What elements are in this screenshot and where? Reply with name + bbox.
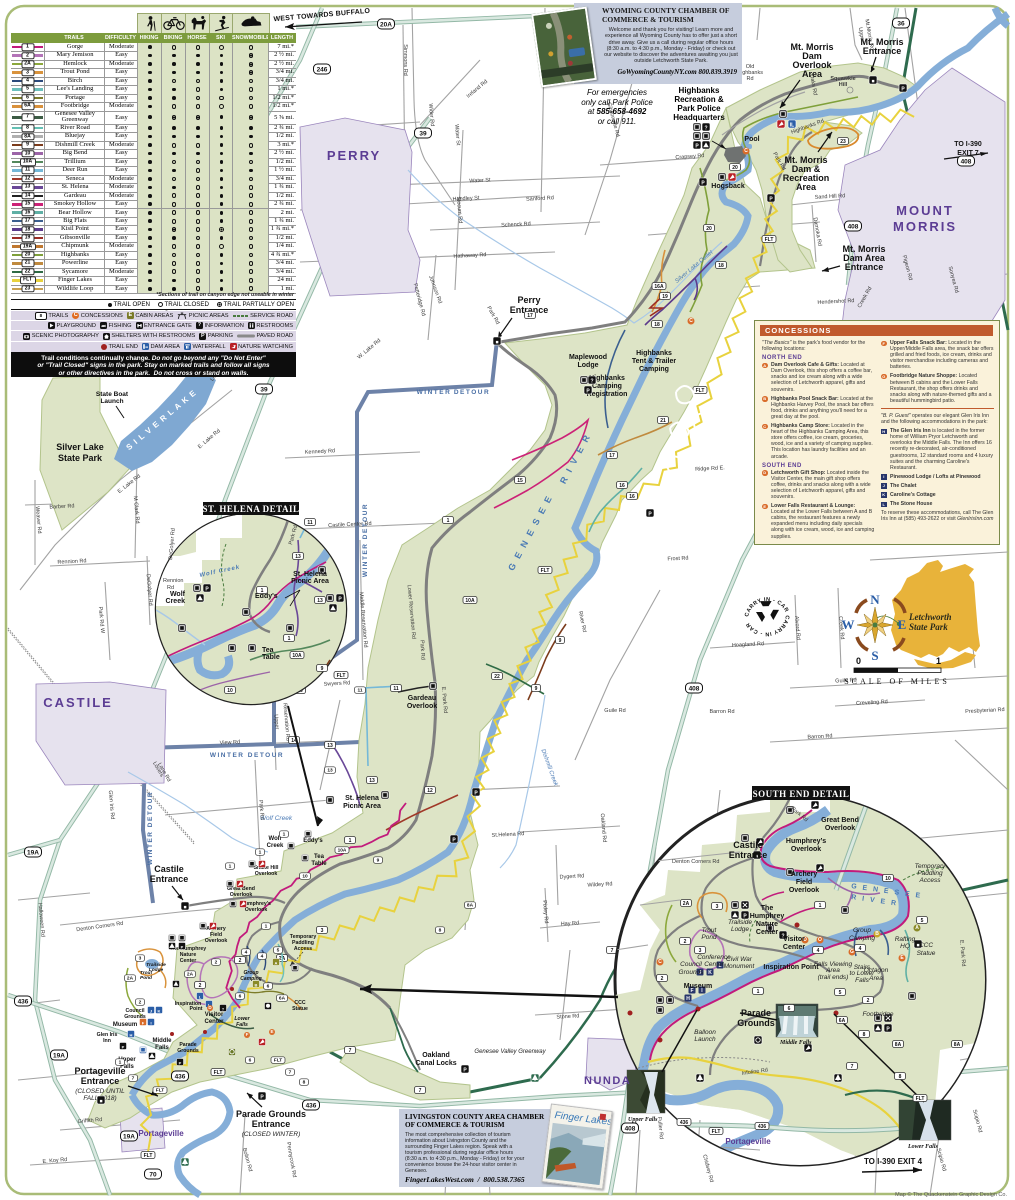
- svg-text:■: ■: [495, 340, 498, 346]
- svg-text:6: 6: [788, 1006, 791, 1012]
- svg-text:13: 13: [295, 554, 301, 560]
- svg-text:■: ■: [871, 79, 874, 85]
- svg-text:Rennion: Rennion: [163, 578, 184, 584]
- svg-text:Castile: Castile: [154, 864, 184, 874]
- svg-text:Grounds: Grounds: [679, 969, 705, 976]
- svg-text:5: 5: [921, 918, 924, 924]
- svg-text:Creek: Creek: [267, 843, 284, 849]
- svg-text:Point: Point: [190, 1006, 203, 1012]
- svg-text:St. Helena: St. Helena: [345, 795, 379, 802]
- svg-text:FLT: FLT: [274, 1058, 283, 1064]
- svg-text:Simmons Rd: Simmons Rd: [402, 44, 408, 75]
- svg-text:Water St: Water St: [469, 177, 491, 184]
- svg-text:to Lower: to Lower: [850, 970, 876, 977]
- svg-text:16A: 16A: [654, 284, 664, 290]
- svg-text:10: 10: [885, 876, 891, 882]
- svg-text:Council: Council: [680, 961, 702, 968]
- svg-text:0: 0: [856, 656, 861, 666]
- svg-text:1: 1: [288, 636, 291, 642]
- svg-text:Silver Lake: Silver Lake: [56, 442, 104, 452]
- svg-text:Nature: Nature: [756, 921, 778, 928]
- svg-text:Tent & Trailer: Tent & Trailer: [632, 358, 676, 365]
- svg-text:39: 39: [419, 130, 427, 137]
- svg-text:9: 9: [377, 858, 380, 864]
- svg-text:C: C: [658, 959, 662, 965]
- svg-text:State Boat: State Boat: [96, 391, 129, 398]
- svg-text:408: 408: [625, 1125, 636, 1132]
- svg-text:E: E: [898, 617, 907, 632]
- svg-text:?: ?: [704, 126, 707, 132]
- svg-text:7: 7: [289, 1070, 292, 1076]
- svg-text:7: 7: [132, 1076, 135, 1082]
- svg-text:IL: IL: [790, 123, 794, 129]
- svg-text:Overlook: Overlook: [230, 892, 253, 898]
- svg-text:13: 13: [327, 768, 333, 774]
- svg-text:Map © The Quackenstein Graphic: Map © The Quackenstein Graphic Design Co…: [895, 1191, 1007, 1198]
- svg-text:11: 11: [357, 688, 362, 694]
- svg-text:13: 13: [369, 778, 375, 784]
- svg-text:SOUTH END DETAIL: SOUTH END DETAIL: [753, 789, 850, 799]
- svg-text:Area: Area: [796, 182, 817, 192]
- svg-text:9: 9: [559, 638, 562, 644]
- svg-text:2A: 2A: [127, 976, 134, 982]
- svg-text:18: 18: [654, 322, 660, 328]
- svg-text:16: 16: [629, 494, 635, 500]
- svg-text:Entrance: Entrance: [150, 874, 189, 884]
- svg-text:7: 7: [611, 948, 614, 954]
- svg-text:1: 1: [447, 518, 450, 524]
- svg-text:Trailside: Trailside: [728, 919, 752, 926]
- svg-text:Launch: Launch: [694, 1036, 716, 1043]
- svg-text:6: 6: [239, 994, 242, 1000]
- svg-text:4: 4: [245, 950, 248, 956]
- svg-text:4: 4: [261, 954, 264, 960]
- svg-text:E: E: [270, 1029, 273, 1034]
- svg-text:39: 39: [260, 386, 268, 393]
- svg-text:Rd: Rd: [167, 585, 174, 591]
- svg-text:10: 10: [227, 688, 233, 694]
- svg-text:10: 10: [302, 874, 308, 880]
- svg-text:FLT: FLT: [765, 237, 774, 243]
- svg-text:Hay Rd: Hay Rd: [561, 921, 580, 928]
- svg-text:11: 11: [393, 686, 399, 692]
- svg-text:Highbanks: Highbanks: [636, 350, 672, 357]
- svg-text:5: 5: [277, 948, 280, 954]
- svg-text:MOUNT: MOUNT: [896, 203, 954, 218]
- svg-text:A: A: [915, 925, 919, 931]
- svg-text:Parade Grounds: Parade Grounds: [236, 1109, 306, 1119]
- svg-text:3: 3: [699, 948, 702, 954]
- svg-text:6: 6: [267, 984, 270, 990]
- svg-text:20: 20: [706, 226, 712, 232]
- svg-text:C: C: [689, 318, 693, 324]
- svg-text:Table: Table: [311, 861, 327, 867]
- svg-text:436: 436: [680, 1120, 689, 1126]
- svg-text:Denton Corners Rd: Denton Corners Rd: [672, 859, 719, 865]
- svg-text:5: 5: [839, 990, 842, 996]
- svg-text:(trail ends): (trail ends): [818, 974, 849, 981]
- svg-text:H: H: [686, 996, 690, 1002]
- svg-text:St. Helena: St. Helena: [293, 571, 327, 578]
- svg-text:Pool: Pool: [744, 136, 759, 143]
- svg-text:17: 17: [609, 453, 615, 459]
- svg-text:Falls: Falls: [855, 977, 869, 984]
- svg-text:H: H: [130, 1032, 133, 1037]
- svg-text:NUNDA: NUNDA: [584, 1075, 631, 1087]
- svg-text:246: 246: [317, 66, 328, 73]
- svg-text:K: K: [708, 970, 712, 976]
- svg-text:Inn: Inn: [103, 1038, 111, 1044]
- svg-text:Center: Center: [704, 961, 724, 968]
- svg-text:1: 1: [349, 838, 352, 844]
- svg-text:FLT: FLT: [916, 1096, 925, 1102]
- svg-text:Humphrey: Humphrey: [750, 913, 785, 920]
- svg-text:Footbridge: Footbridge: [862, 1011, 893, 1018]
- svg-text:7: 7: [851, 1064, 854, 1070]
- svg-text:13: 13: [327, 743, 333, 749]
- svg-text:1: 1: [261, 588, 264, 594]
- svg-text:408: 408: [848, 223, 859, 230]
- svg-text:Balloon: Balloon: [694, 1029, 716, 1036]
- svg-text:Access: Access: [919, 877, 942, 884]
- svg-text:WINTER DETOUR: WINTER DETOUR: [147, 791, 154, 865]
- svg-text:Pond: Pond: [140, 975, 153, 981]
- svg-text:The: The: [761, 905, 774, 912]
- svg-text:Archery: Archery: [791, 871, 818, 878]
- svg-text:23: 23: [840, 139, 846, 145]
- svg-text:436: 436: [306, 1102, 317, 1109]
- svg-text:FLT: FLT: [156, 1088, 165, 1094]
- svg-text:Great Bend: Great Bend: [821, 817, 859, 824]
- svg-text:Launch: Launch: [100, 398, 123, 405]
- svg-text:Overlook: Overlook: [789, 887, 819, 894]
- svg-text:P: P: [181, 944, 184, 949]
- svg-text:19A: 19A: [123, 1133, 135, 1140]
- svg-text:19A: 19A: [27, 849, 39, 856]
- svg-text:WINTER DETOUR: WINTER DETOUR: [210, 752, 284, 759]
- svg-text:PERRY: PERRY: [327, 148, 381, 163]
- svg-text:Center: Center: [756, 929, 778, 936]
- svg-text:Entrance: Entrance: [845, 262, 884, 272]
- svg-text:Museum: Museum: [113, 1022, 137, 1028]
- svg-text:8A: 8A: [467, 903, 474, 909]
- svg-text:P: P: [179, 1060, 182, 1065]
- svg-text:2: 2: [867, 998, 870, 1004]
- svg-text:6: 6: [249, 1058, 252, 1064]
- svg-text:MORRIS: MORRIS: [893, 219, 957, 234]
- svg-text:Inspiration Point: Inspiration Point: [763, 964, 819, 971]
- svg-text:Middle Falls: Middle Falls: [779, 1040, 812, 1046]
- svg-text:Oakland: Oakland: [422, 1052, 450, 1059]
- svg-text:Eddy’s: Eddy’s: [303, 838, 323, 844]
- svg-text:22: 22: [494, 674, 500, 680]
- svg-text:Entrance: Entrance: [729, 850, 768, 860]
- svg-text:Rafting: Rafting: [895, 936, 916, 943]
- svg-text:Upper Falls: Upper Falls: [628, 1117, 658, 1123]
- svg-text:4: 4: [817, 948, 820, 954]
- svg-text:DETOUR: DETOUR: [454, 389, 490, 396]
- svg-text:10A: 10A: [465, 598, 475, 604]
- svg-text:Overlook: Overlook: [255, 871, 278, 877]
- svg-text:Barron Rd: Barron Rd: [709, 709, 734, 715]
- svg-text:8A: 8A: [954, 1042, 961, 1048]
- svg-text:436: 436: [18, 998, 29, 1005]
- svg-text:Civil War: Civil War: [726, 956, 753, 963]
- svg-text:Perry: Perry: [517, 295, 540, 305]
- svg-text:G: G: [850, 949, 854, 955]
- svg-text:Canal Locks: Canal Locks: [415, 1060, 456, 1067]
- svg-text:1: 1: [936, 656, 941, 666]
- svg-text:FLT: FLT: [214, 1070, 223, 1076]
- svg-text:■: ■: [99, 1099, 102, 1105]
- svg-text:Camping: Camping: [592, 383, 622, 390]
- svg-text:HQ: HQ: [900, 943, 910, 950]
- svg-text:Paddling: Paddling: [917, 870, 943, 877]
- svg-text:3: 3: [321, 928, 324, 934]
- svg-text:Group: Group: [853, 927, 871, 934]
- svg-text:Table: Table: [262, 654, 280, 661]
- svg-text:FLT: FLT: [144, 1153, 153, 1159]
- svg-text:P: P: [122, 1044, 125, 1049]
- svg-text:4: 4: [859, 946, 862, 952]
- svg-text:Grounds: Grounds: [737, 1018, 775, 1028]
- svg-text:Tea: Tea: [262, 647, 274, 654]
- svg-text:2A: 2A: [683, 901, 690, 907]
- svg-text:Center: Center: [783, 944, 805, 951]
- svg-text:17: 17: [527, 313, 533, 319]
- svg-text:3: 3: [139, 956, 142, 962]
- svg-text:Museum: Museum: [684, 983, 712, 990]
- svg-text:W: W: [842, 617, 855, 632]
- svg-text:Overlook: Overlook: [205, 938, 228, 944]
- svg-text:I: I: [150, 1020, 151, 1025]
- svg-text:Overlook: Overlook: [407, 703, 437, 710]
- svg-text:Entrance: Entrance: [81, 1076, 120, 1086]
- svg-text:21: 21: [660, 418, 666, 424]
- svg-text:Hill: Hill: [839, 82, 848, 88]
- svg-text:Lodge: Lodge: [578, 362, 599, 369]
- svg-text:8: 8: [863, 1032, 866, 1038]
- svg-text:Guile Rd: Guile Rd: [604, 708, 625, 714]
- svg-text:Park Rd: Park Rd: [418, 640, 425, 660]
- svg-text:WINTER DETOUR: WINTER DETOUR: [362, 503, 369, 577]
- svg-text:2: 2: [661, 976, 664, 982]
- svg-text:408: 408: [961, 158, 972, 165]
- svg-text:11: 11: [307, 520, 313, 526]
- svg-text:Tea: Tea: [314, 854, 325, 860]
- svg-text:6A: 6A: [279, 996, 286, 1002]
- svg-text:A: A: [275, 960, 278, 965]
- svg-text:Maplewood: Maplewood: [569, 354, 607, 361]
- svg-text:8: 8: [439, 928, 442, 934]
- svg-text:20A: 20A: [380, 21, 392, 28]
- svg-text:1: 1: [265, 924, 268, 930]
- svg-text:3: 3: [716, 904, 719, 910]
- svg-text:1: 1: [819, 903, 822, 909]
- svg-text:Picnic Area: Picnic Area: [291, 578, 329, 585]
- svg-text:13: 13: [317, 598, 323, 604]
- svg-text:F: F: [246, 1032, 249, 1037]
- svg-text:10A: 10A: [338, 848, 347, 854]
- svg-text:B: B: [255, 982, 258, 987]
- svg-text:70: 70: [149, 1171, 157, 1178]
- svg-text:2: 2: [239, 958, 242, 964]
- svg-text:9: 9: [535, 686, 538, 692]
- svg-text:Visitor: Visitor: [205, 1012, 224, 1018]
- svg-text:8A: 8A: [895, 1042, 902, 1048]
- svg-text:9: 9: [321, 666, 324, 672]
- svg-text:10A: 10A: [292, 653, 302, 659]
- svg-text:Overlook: Overlook: [825, 825, 855, 832]
- svg-text:K: K: [158, 1008, 161, 1013]
- svg-text:TO I-390 EXIT 4: TO I-390 EXIT 4: [864, 1157, 923, 1166]
- svg-text:Monument: Monument: [724, 963, 756, 970]
- svg-text:436: 436: [758, 1124, 767, 1130]
- svg-text:Parade: Parade: [741, 1008, 771, 1018]
- svg-text:7: 7: [349, 1048, 352, 1054]
- svg-text:Field: Field: [796, 879, 812, 886]
- svg-text:J: J: [150, 1008, 152, 1013]
- svg-text:State Park: State Park: [909, 622, 948, 632]
- svg-text:36: 36: [897, 20, 905, 27]
- svg-text:Temporary: Temporary: [915, 863, 947, 870]
- svg-text:2: 2: [139, 1000, 142, 1006]
- svg-text:1: 1: [119, 1060, 122, 1066]
- svg-text:Statue: Statue: [917, 950, 936, 957]
- svg-text:Stone Rd: Stone Rd: [556, 1013, 579, 1020]
- svg-text:1: 1: [259, 850, 262, 856]
- svg-text:16: 16: [619, 483, 625, 489]
- svg-text:Overlook: Overlook: [791, 846, 821, 853]
- svg-text:2: 2: [199, 983, 202, 989]
- svg-text:CCC: CCC: [919, 942, 933, 949]
- svg-text:2: 2: [684, 939, 687, 945]
- svg-text:1: 1: [229, 864, 232, 870]
- svg-text:State Park: State Park: [58, 453, 103, 463]
- svg-text:FLT: FLT: [337, 673, 346, 679]
- svg-text:Genesee Valley Greenway: Genesee Valley Greenway: [474, 1049, 546, 1055]
- svg-text:1: 1: [283, 832, 286, 838]
- svg-text:Lodge: Lodge: [731, 926, 749, 933]
- svg-text:Camping: Camping: [639, 366, 669, 373]
- svg-text:Lower Falls: Lower Falls: [907, 1144, 939, 1150]
- svg-text:7: 7: [419, 1088, 422, 1094]
- svg-text:436: 436: [175, 1073, 186, 1080]
- svg-text:Visitor: Visitor: [783, 936, 805, 943]
- svg-text:Creek: Creek: [166, 598, 186, 605]
- svg-text:(CLOSED UNTIL: (CLOSED UNTIL: [75, 1088, 125, 1095]
- svg-text:Rd: Rd: [746, 76, 753, 82]
- svg-text:Portageville: Portageville: [74, 1066, 125, 1076]
- svg-text:TO I-390: TO I-390: [954, 141, 982, 148]
- svg-text:Humphrey’s: Humphrey’s: [786, 838, 826, 845]
- svg-text:N: N: [870, 592, 880, 607]
- svg-text:19: 19: [662, 294, 668, 300]
- svg-text:2: 2: [215, 960, 218, 966]
- svg-text:19A: 19A: [53, 1052, 65, 1059]
- svg-text:Falls: Falls: [155, 1045, 169, 1051]
- svg-text:Letchworth: Letchworth: [908, 612, 952, 622]
- svg-text:?: ?: [590, 379, 593, 385]
- svg-text:8: 8: [899, 1074, 902, 1080]
- svg-text:O: O: [818, 937, 822, 943]
- svg-text:Grounds: Grounds: [177, 1048, 199, 1054]
- svg-text:FLT: FLT: [712, 1129, 721, 1135]
- svg-text:Camping: Camping: [849, 935, 875, 942]
- svg-text:SCALE OF MILES: SCALE OF MILES: [844, 677, 950, 686]
- svg-text:12: 12: [427, 788, 433, 794]
- svg-text:Falls: Falls: [236, 1022, 248, 1028]
- svg-text:Access: Access: [294, 946, 312, 952]
- svg-text:View Rd: View Rd: [220, 739, 241, 746]
- svg-text:Castile: Castile: [733, 840, 763, 850]
- svg-text:Center: Center: [180, 958, 196, 964]
- svg-text:2A: 2A: [187, 972, 194, 978]
- svg-text:Area: Area: [825, 967, 840, 974]
- svg-text:CASTILE: CASTILE: [43, 695, 113, 710]
- svg-text:B: B: [875, 931, 879, 937]
- svg-text:Trout: Trout: [702, 927, 718, 934]
- svg-text:8: 8: [303, 1080, 306, 1086]
- svg-text:1: 1: [757, 989, 760, 995]
- svg-text:S: S: [871, 648, 878, 663]
- svg-text:Pond: Pond: [701, 934, 717, 941]
- svg-text:Overlook: Overlook: [245, 907, 268, 913]
- svg-text:C: C: [744, 148, 748, 154]
- svg-text:WINTER: WINTER: [417, 389, 452, 396]
- svg-text:Statue: Statue: [292, 1006, 308, 1012]
- svg-text:Entrance: Entrance: [252, 1119, 291, 1129]
- svg-text:Wolf: Wolf: [170, 591, 186, 598]
- svg-text:ST. HELENA DETAIL: ST. HELENA DETAIL: [203, 504, 300, 514]
- svg-text:408: 408: [689, 685, 700, 692]
- svg-text:Eddy's: Eddy's: [255, 593, 278, 600]
- svg-text:Portageville: Portageville: [138, 1129, 184, 1138]
- svg-text:Registration: Registration: [587, 391, 628, 398]
- svg-text:18: 18: [718, 263, 724, 269]
- svg-text:Middle: Middle: [153, 1038, 173, 1044]
- svg-text:Gardeau: Gardeau: [408, 695, 436, 702]
- svg-text:■: ■: [183, 905, 186, 911]
- svg-text:Frost Rd: Frost Rd: [667, 555, 688, 562]
- svg-text:Hogsback: Hogsback: [711, 183, 745, 190]
- svg-text:6A: 6A: [839, 1018, 846, 1024]
- svg-text:Center: Center: [204, 1019, 224, 1025]
- svg-text:Picnic Area: Picnic Area: [343, 803, 381, 810]
- svg-text:Portageville: Portageville: [725, 1137, 771, 1146]
- svg-text:15: 15: [517, 478, 523, 484]
- svg-text:FLT: FLT: [541, 568, 550, 574]
- svg-text:FLT: FLT: [696, 388, 705, 394]
- svg-text:(CLOSED WINTER): (CLOSED WINTER): [242, 1131, 301, 1138]
- svg-text:20: 20: [732, 165, 738, 171]
